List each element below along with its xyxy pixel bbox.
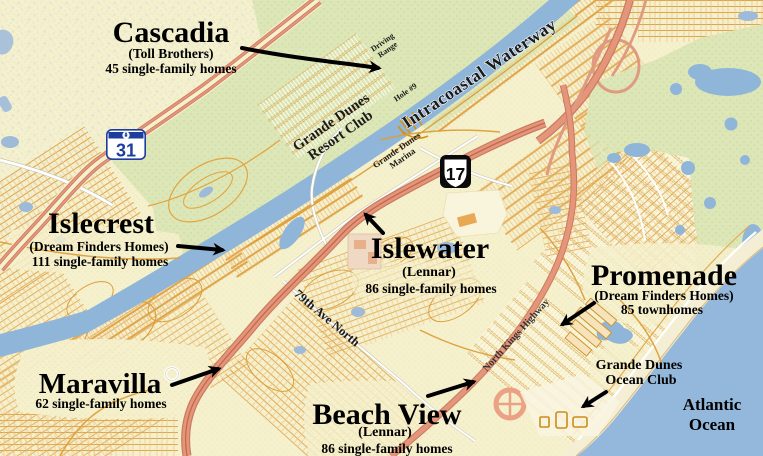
svg-text:(Dream Finders Homes): (Dream Finders Homes) <box>594 288 733 303</box>
svg-text:62 single-family homes: 62 single-family homes <box>35 396 166 411</box>
svg-text:Atlantic: Atlantic <box>683 395 742 414</box>
svg-text:Ocean: Ocean <box>689 415 736 434</box>
svg-text:111 single-family homes: 111 single-family homes <box>32 254 169 269</box>
svg-text:86 single-family homes: 86 single-family homes <box>365 281 496 296</box>
svg-text:(Toll Brothers): (Toll Brothers) <box>128 46 213 61</box>
svg-text:Grande Dunes: Grande Dunes <box>596 358 683 373</box>
svg-text:45 single-family homes: 45 single-family homes <box>105 61 236 76</box>
svg-text:Islewater: Islewater <box>371 232 489 265</box>
svg-text:85 townhomes: 85 townhomes <box>621 302 703 317</box>
svg-text:17: 17 <box>446 164 465 184</box>
svg-text:(Dream Finders Homes): (Dream Finders Homes) <box>29 239 168 254</box>
svg-text:(Lennar): (Lennar) <box>358 425 412 440</box>
svg-text:Ocean Club: Ocean Club <box>605 373 676 388</box>
svg-text:31: 31 <box>116 141 136 161</box>
svg-text:(Lennar): (Lennar) <box>402 265 456 280</box>
svg-text:Islecrest: Islecrest <box>48 207 154 240</box>
svg-text:86 single-family homes: 86 single-family homes <box>321 441 452 456</box>
svg-text:Cascadia: Cascadia <box>113 16 230 49</box>
